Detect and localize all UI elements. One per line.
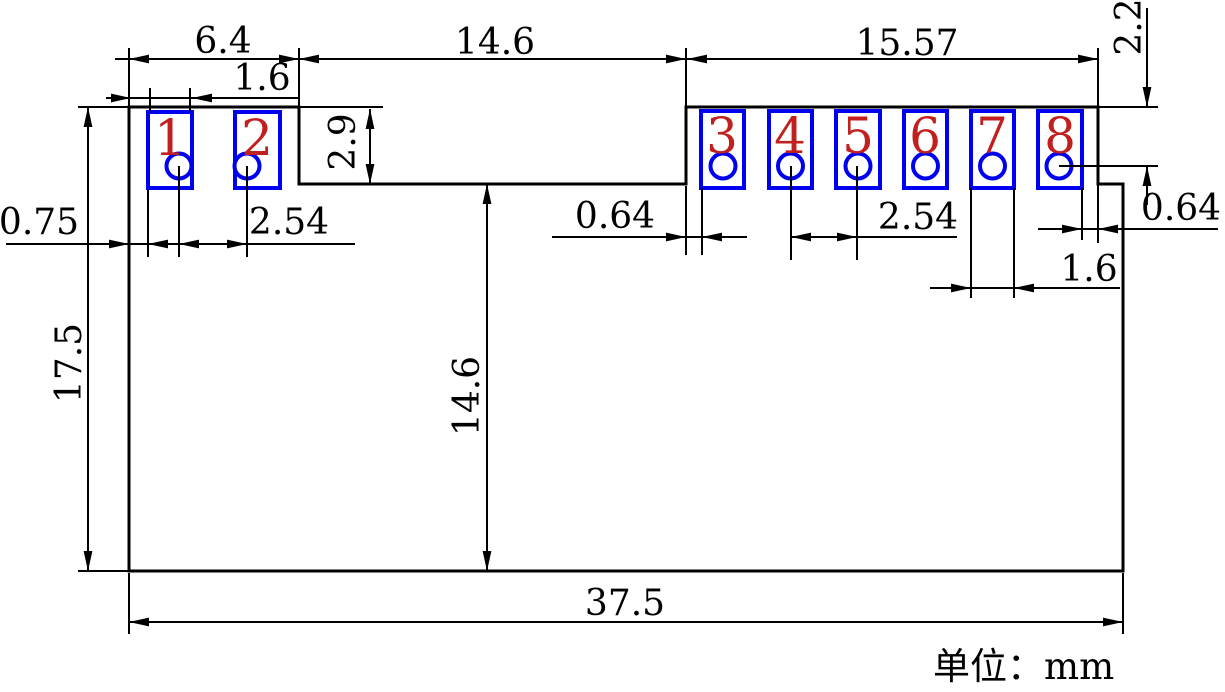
dim-pad-width-right: 1.6 [930,249,1120,292]
dim-middle-gap-width: 14.6 [299,22,686,63]
pad-8: 8 [1038,107,1082,188]
pad-1: 1 [148,109,192,188]
dim-overall-height: 17.5 [49,107,92,571]
dim-pad-pitch-right-label: 2.54 [878,197,958,238]
pcb-dimension-drawing: 1 2 3 4 5 6 7 8 6.4 [0,0,1225,692]
pad-7: 7 [971,107,1014,188]
dim-right-section-width: 15.57 [687,23,1098,64]
pad-7-number: 7 [976,107,1008,165]
pad-8-number: 8 [1044,107,1076,165]
arrowheads [1143,87,1152,186]
pad-2: 2 [235,109,281,188]
dim-left-section-width-label: 6.4 [194,21,251,62]
pad-3: 3 [701,107,744,188]
dim-overall-width: 37.5 [129,583,1123,626]
dim-middle-gap-width-label: 14.6 [455,22,535,63]
pad-4-number: 4 [774,107,806,165]
dim-pad-width-left: 1.6 [106,58,299,102]
dim-left-edge-and-pitch: 0.75 2.54 [0,202,355,248]
dim-pad8-to-tab-edge-label: 0.64 [1141,188,1221,229]
dim-pad-pitch-right: 2.54 [791,197,958,241]
pad-3-number: 3 [706,107,738,165]
dim-pad-width-left-label: 1.6 [233,58,290,99]
dim-tab-edge-to-pad3: 0.64 [552,196,747,241]
drawing-canvas: 1 2 3 4 5 6 7 8 6.4 [0,0,1225,692]
pad-2-number: 2 [241,109,273,167]
pad-6-number: 6 [909,107,941,165]
dim-pad-pitch-left-label: 2.54 [249,202,329,243]
pad-6: 6 [904,107,947,188]
dim-tab-edge-to-pad3-label: 0.64 [575,196,655,237]
dim-top-to-hole-center-label: 2.2 [1109,0,1150,56]
dim-pad-section-height-label: 2.9 [323,113,364,170]
dim-left-edge-to-pad1-label: 0.75 [0,202,79,243]
dim-pad8-to-tab-edge: 0.64 [1038,188,1221,233]
dim-lower-section-height: 14.6 [447,184,491,571]
dim-overall-height-label: 17.5 [49,323,90,403]
dim-right-section-width-label: 15.57 [855,23,958,64]
dim-pad-width-right-label: 1.6 [1060,249,1117,290]
units-note: 单位：mm [933,645,1114,688]
dim-lower-section-height-label: 14.6 [447,356,488,436]
pad-5-number: 5 [842,107,874,165]
dim-overall-width-label: 37.5 [585,583,665,624]
dim-pad-section-height: 2.9 [323,109,374,184]
pad-1-number: 1 [154,109,186,167]
dim-top-to-hole-center: 2.2 [1109,0,1151,205]
